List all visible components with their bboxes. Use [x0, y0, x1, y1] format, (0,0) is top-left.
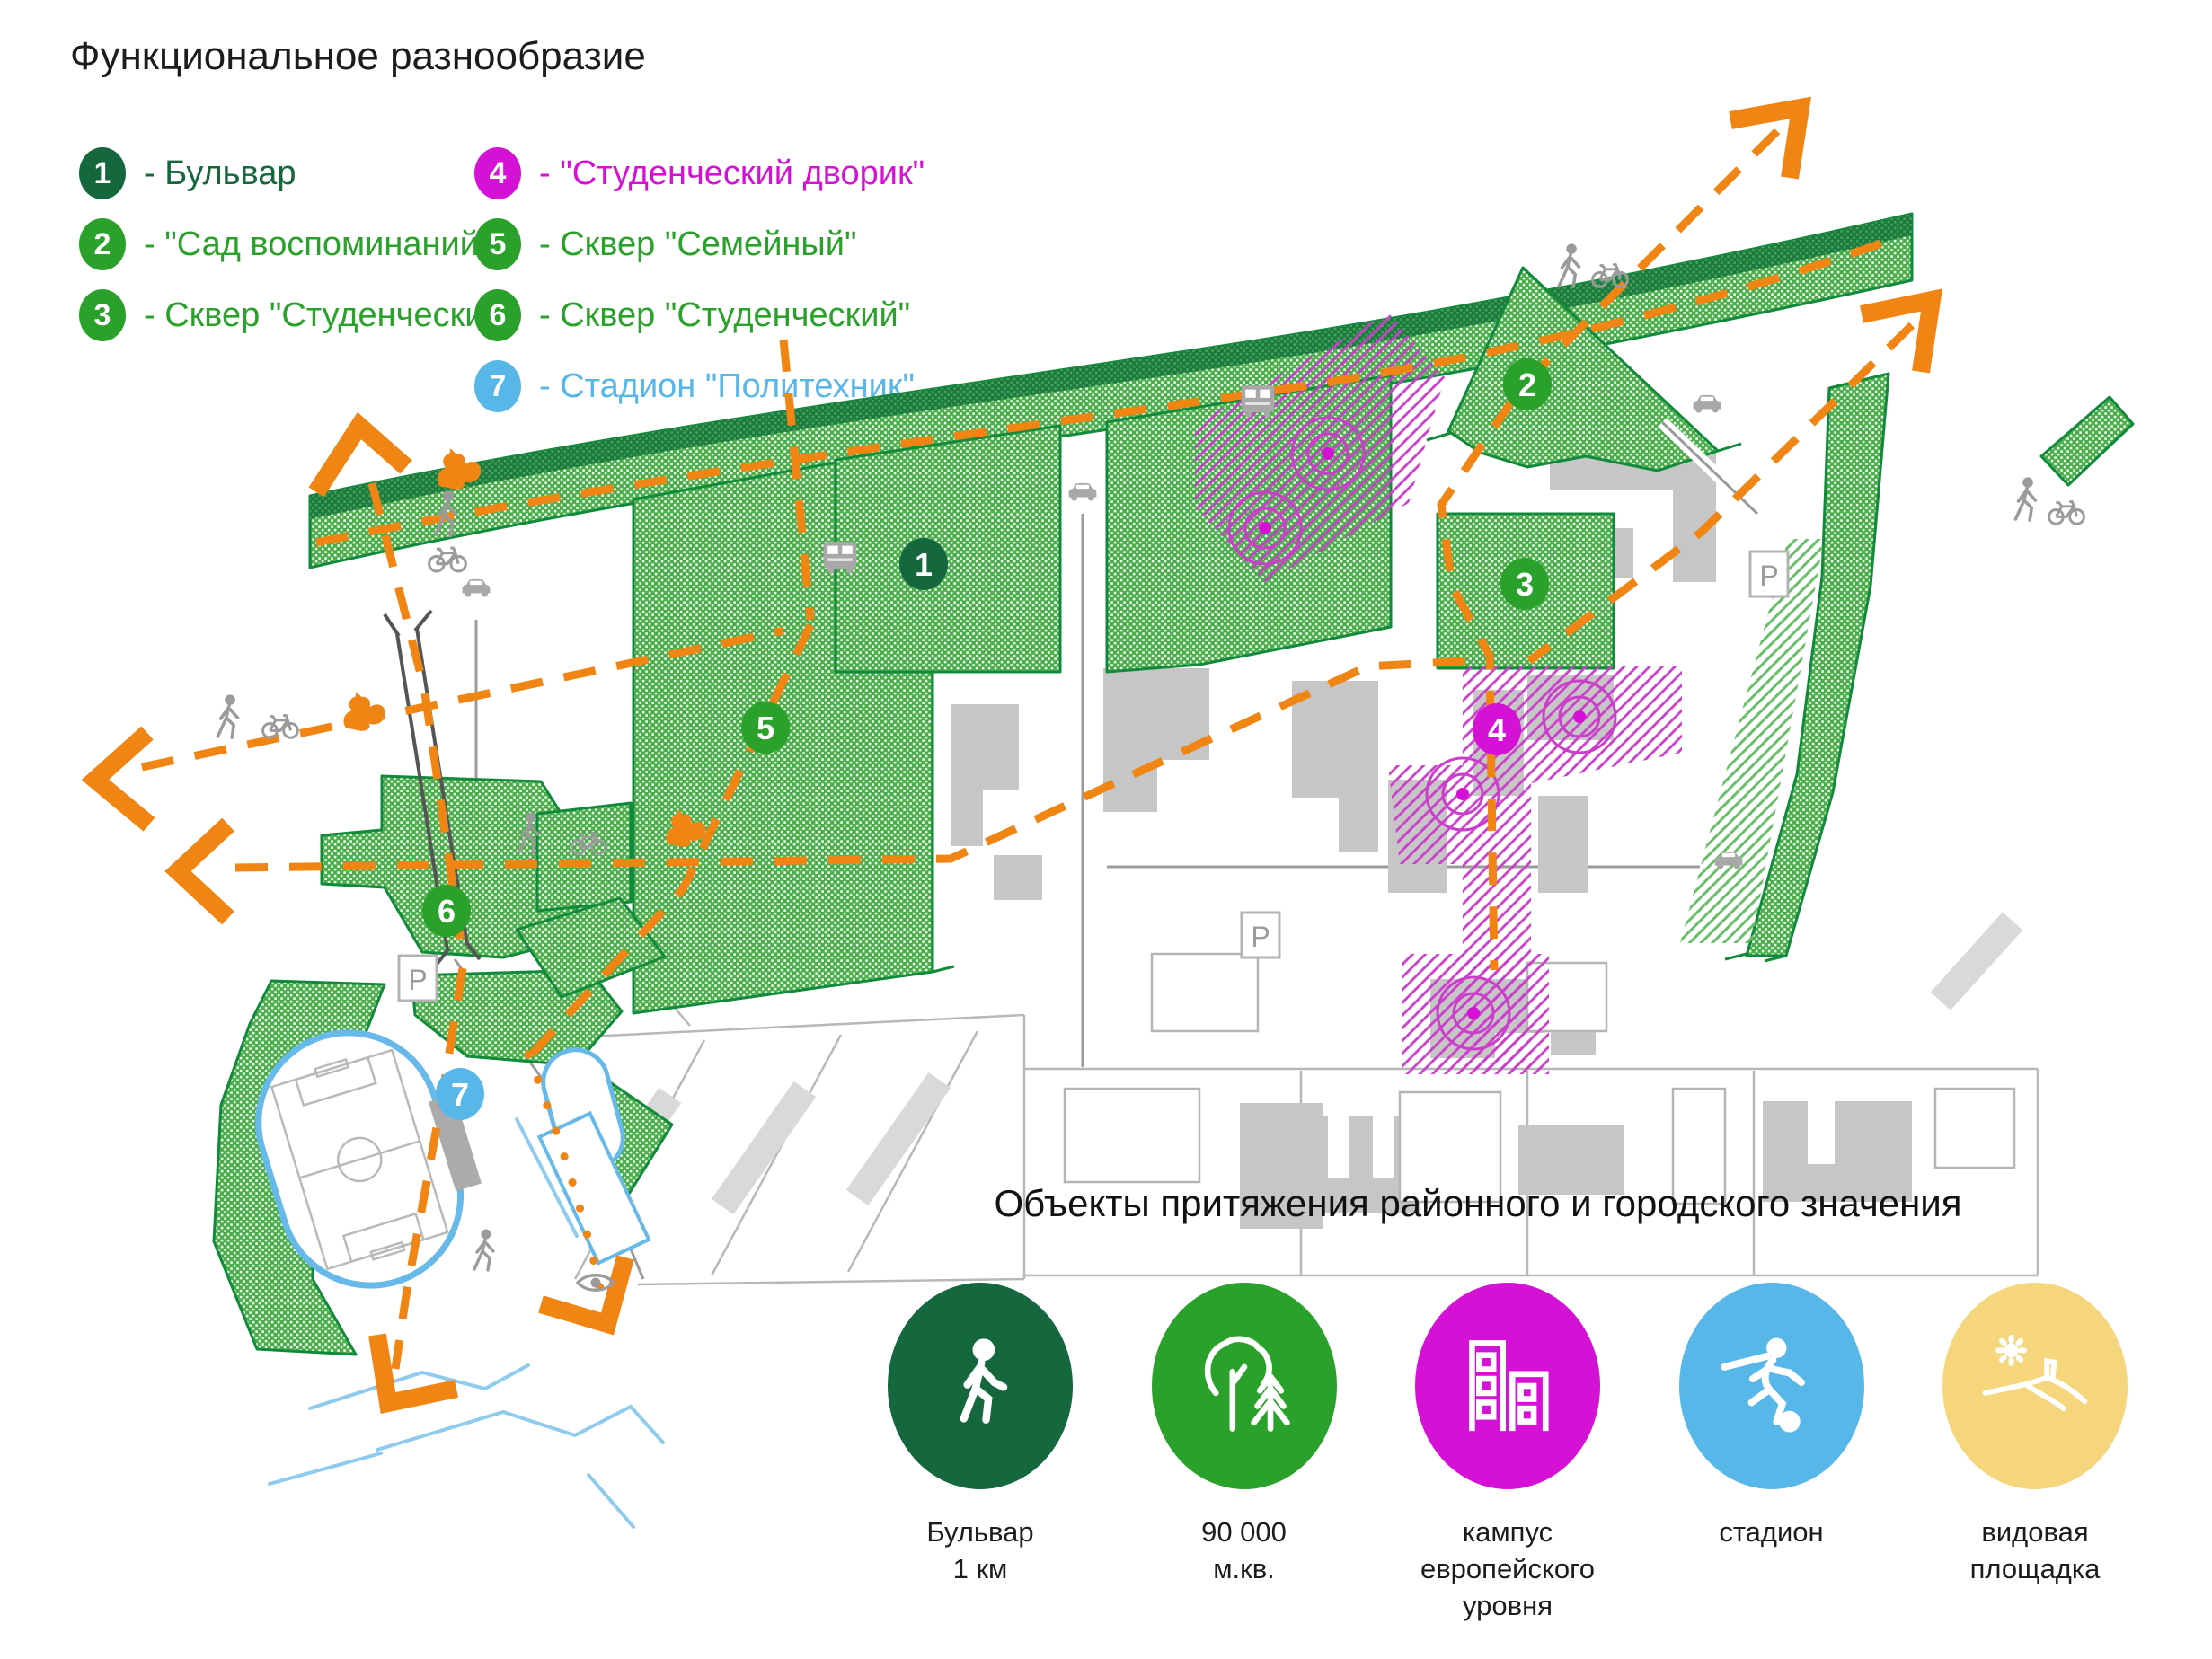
attractions-title: Объекты притяжения районного и городског…	[880, 1182, 2075, 1225]
map-badge-7-number: 7	[451, 1076, 469, 1113]
map-badge-3-number: 3	[1516, 566, 1534, 603]
walking-person-icon	[888, 1283, 1073, 1489]
footballer-icon	[1679, 1283, 1864, 1489]
attraction-label: видовая площадка	[1970, 1514, 2101, 1588]
green-patch-3	[537, 803, 631, 911]
car-icon	[1069, 483, 1097, 501]
campus-buildings-icon	[1415, 1283, 1600, 1489]
attraction-label: стадион	[1719, 1514, 1823, 1551]
pedestrian-icon	[2015, 477, 2035, 520]
bicycle-icon	[263, 716, 298, 738]
map-badge-4: 4	[1473, 703, 1521, 755]
green-wedge-right	[2041, 397, 2133, 485]
map-badge-2: 2	[1503, 358, 1552, 410]
route-arrowhead	[377, 1335, 456, 1403]
eye-icon	[578, 1275, 614, 1291]
pedestrian-icon	[217, 694, 237, 737]
map-badge-2-number: 2	[1518, 366, 1536, 403]
car-icon	[463, 579, 491, 597]
attraction-label: кампус европейского уровня	[1420, 1514, 1595, 1625]
attraction-viewpoint: видовая площадка	[1910, 1283, 2160, 1625]
attraction-green-area: 90 000 м.кв.	[1119, 1283, 1369, 1625]
map-badge-3: 3	[1500, 558, 1549, 610]
parking-sign-label: P	[1251, 921, 1270, 953]
map-badge-1: 1	[899, 538, 948, 590]
parking-sign-label: P	[1759, 560, 1778, 592]
route-arrowhead	[95, 733, 149, 825]
car-icon	[1694, 395, 1721, 413]
attraction-stadium: стадион	[1647, 1283, 1897, 1625]
map-badge-5-number: 5	[757, 710, 774, 746]
bicycle-icon	[429, 548, 466, 571]
pedestrian-icon	[474, 1230, 493, 1271]
parking-sign-label: P	[408, 964, 427, 996]
attraction-label: Бульвар 1 км	[926, 1514, 1033, 1588]
route-arrowhead	[178, 825, 228, 918]
attraction-label: 90 000 м.кв.	[1201, 1514, 1287, 1588]
trees-icon	[1152, 1283, 1337, 1489]
parking-sign: P	[1242, 913, 1279, 957]
parking-sign: P	[1750, 552, 1788, 596]
map-badge-6: 6	[422, 885, 471, 937]
map-badge-1-number: 1	[915, 546, 933, 583]
attraction-campus: кампус европейского уровня	[1383, 1283, 1632, 1625]
attraction-boulevard: Бульвар 1 км	[855, 1283, 1105, 1625]
map-badge-5: 5	[741, 702, 790, 754]
map-badge-4-number: 4	[1488, 711, 1506, 748]
map-badge-7: 7	[436, 1068, 484, 1120]
area-under-band-left	[836, 426, 1060, 672]
attractions-row: Бульвар 1 км 90 000 м.кв.	[855, 1283, 2160, 1625]
viewpoint-icon	[1942, 1283, 2128, 1489]
route-arrowhead	[541, 1257, 625, 1324]
bicycle-icon	[2049, 502, 2084, 525]
parking-sign: P	[399, 956, 437, 1001]
map-badge-6-number: 6	[438, 893, 456, 930]
slide: Функциональное разнообразие 1 - Бульвар …	[0, 0, 2212, 1659]
pedestrian-icon	[1559, 243, 1579, 287]
squirrel-icon	[343, 692, 385, 731]
